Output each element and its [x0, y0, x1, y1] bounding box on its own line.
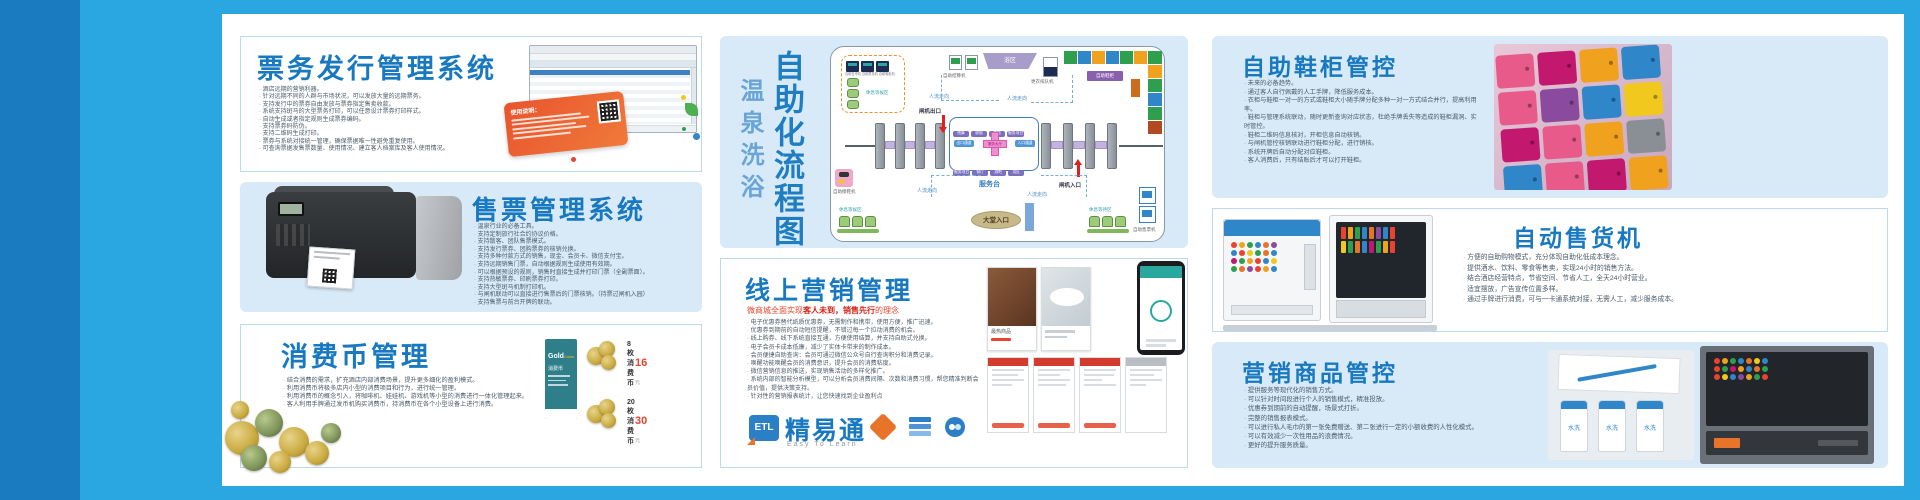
tile — [1540, 87, 1580, 123]
tile — [1341, 241, 1346, 253]
bullet-item: 可以针对时间段进行个人的销售模式，精准投放。 — [1244, 395, 1534, 404]
locker-strip-horizontal — [1064, 51, 1147, 64]
brochure: 票务发行管理系统 酒店远期的营销利器。针对远期不同的人群与市场状况，可以发放大量… — [0, 0, 1920, 500]
machines-area: 自助售币机 自助票务机 自助鞋柜机 休息等候区 — [841, 55, 905, 113]
tile — [1148, 65, 1162, 78]
brand-tagline: Easy To Learn — [787, 441, 858, 448]
price-amount: 30 — [635, 415, 647, 427]
tile — [1722, 366, 1728, 372]
panel-online-marketing: 线上营销管理 微商城全面实现客人未到，销售先行的理念 电子优惠券替代纸质优惠券，… — [720, 258, 1188, 468]
gate-rail — [845, 145, 875, 147]
tile — [1579, 47, 1619, 83]
card-footer — [545, 409, 577, 419]
panel-ticket-issuing: 票务发行管理系统 酒店远期的营销利器。针对远期不同的人群与市场状况，可以发放大量… — [240, 36, 702, 172]
card-text-line — [548, 384, 568, 386]
tile — [1239, 250, 1245, 256]
flow-direction-label: 人流走向 — [1007, 95, 1027, 102]
tile — [1754, 358, 1760, 364]
exit-arrow-shaft — [942, 115, 945, 127]
tile — [1247, 266, 1253, 272]
product-grid — [1231, 242, 1277, 272]
tile — [1355, 227, 1360, 239]
gate-exit-label: 闸机出口 — [919, 107, 941, 115]
printer-side-panel — [416, 196, 462, 280]
tile — [1626, 118, 1666, 154]
orange-locker-block — [1131, 79, 1140, 97]
gate-pillar — [1063, 123, 1073, 169]
bullet-item: 支持热敏票券、印刷票券打印。 — [474, 277, 696, 285]
tile — [1537, 50, 1577, 86]
vending-machine — [1223, 219, 1321, 321]
price-label: 20枚消费币 — [627, 399, 635, 446]
gate-bar — [1073, 141, 1085, 149]
tile — [1247, 258, 1253, 264]
tile — [1148, 93, 1162, 106]
qr-code — [597, 99, 621, 123]
bottles-row: 水洗 水洗 水洗 — [1560, 400, 1664, 452]
feature-icon-layers — [909, 417, 931, 437]
gate-bar — [1051, 141, 1063, 149]
machine-label: 自助票务机 — [862, 71, 878, 76]
bullet-item: 客人消费后，只有结账后才可以打开鞋柜。 — [1244, 157, 1482, 166]
panel-coin-management: 消费币管理 结合消费的需求，扩充酒店内部消费场景，提升更多细化的盈利模式。利用消… — [240, 324, 702, 468]
machine-label: 自助鞋柜机 — [879, 71, 895, 76]
tile — [1355, 241, 1360, 253]
tile — [1064, 51, 1077, 64]
bullet-item: 完整的销售报表模式。 — [1244, 414, 1534, 423]
gate-pillar — [1107, 123, 1117, 169]
bullet-item: 结合酒店经营特点，节省空间、节省人工，全天24小时营业。 — [1463, 274, 1863, 285]
entry-channel-chip: 入口通道 — [1015, 140, 1035, 147]
panel-title: 票务发行管理系统 — [257, 47, 497, 86]
app-screen — [1079, 357, 1121, 433]
tile — [1148, 51, 1162, 64]
bullet-item: 适宜摆放，广告宣传位置多样。 — [1463, 285, 1863, 296]
bullet-item: 自动生成或者指定规则生成票券编码。 — [259, 117, 519, 124]
bench-vertical — [847, 78, 859, 109]
bath-zone: 浴区 — [983, 53, 1037, 69]
bullet-item: 系统内部的智能分析模型，可以分析会员消费间隔、次数和消费习惯，帮您精准判断会员价… — [747, 376, 981, 392]
tile — [1120, 51, 1133, 64]
tile — [1722, 374, 1728, 380]
left-blue-stripe — [0, 0, 80, 500]
window-toolbar — [530, 54, 696, 61]
locker-strip-vertical — [1148, 51, 1162, 134]
queue-machine — [1043, 57, 1058, 77]
tile — [1762, 366, 1768, 372]
tile — [1376, 227, 1381, 239]
tile — [1730, 366, 1736, 372]
bullet-item: 更好的提升服务质量。 — [1244, 441, 1534, 450]
flow-subtitle-vertical: 温泉洗浴 — [732, 78, 767, 206]
tile — [1271, 242, 1277, 248]
flow-path — [1031, 75, 1073, 103]
tile — [1362, 241, 1367, 253]
coin — [305, 441, 329, 465]
app-screen — [1125, 357, 1167, 433]
tvm-label: 自助售票机 — [1133, 227, 1156, 233]
bullet-item: 温泉行业的必备工具。 — [474, 224, 696, 232]
app-screen — [987, 357, 1029, 433]
coin — [321, 423, 341, 443]
bullet-item: 方便的自助购物模式，充分体现自助化低成本理念。 — [1463, 253, 1863, 264]
subtitle-prefix: 微商城全面实现 — [747, 306, 803, 315]
bench-base — [837, 229, 879, 233]
flow-title-vertical: 自助化流程图 — [764, 50, 809, 248]
panel-title: 线上营销管理 — [745, 271, 913, 307]
amenities-photo: 水洗 水洗 水洗 — [1548, 350, 1694, 460]
tile — [1231, 258, 1237, 264]
exit-arrow-head — [939, 127, 947, 133]
tile — [1714, 358, 1720, 364]
app-screen — [1033, 357, 1075, 433]
tile — [1255, 266, 1261, 272]
bullet-item: 与闸机联动可以直接进行售票后的门票核销。（持票过闸机入园） — [474, 292, 696, 300]
tile — [1714, 374, 1720, 380]
confetti-dot — [571, 157, 576, 162]
service-desk-label: 服务台 — [979, 179, 1000, 189]
bullet-item: 电子会员卡成本低廉，减少了实体卡带来的制作成本。 — [747, 344, 981, 352]
coins-photo — [221, 361, 381, 469]
rest-area-label: 休息等候区 — [866, 90, 889, 96]
bullet-item: 支持散客、团队售票模式。 — [474, 239, 696, 247]
bullet-item: 唤醒功能唤醒会员的消费意识，提升会员的消费粘度。 — [747, 360, 981, 368]
tile — [1263, 250, 1269, 256]
tile — [1584, 121, 1624, 157]
tile — [1500, 127, 1540, 163]
tile — [1714, 366, 1720, 372]
rest-area-label: 休息等候区 — [839, 207, 862, 213]
bullet-list: 未来的必备趋势。通过客人自行佩戴的人工手牌，降低服务成本。衣柜与鞋柜一对一的方式… — [1244, 80, 1482, 166]
flow-diagram: 自助售币机 自助票务机 自助鞋柜机 休息等候区 自助结算机 浴区 — [830, 46, 1165, 242]
app-photo-card — [1041, 267, 1091, 351]
vending-front-photo — [1700, 346, 1874, 464]
bottle-grid — [1341, 227, 1395, 253]
card-brand-sub: Coins — [564, 354, 574, 359]
leaf-decoration — [685, 103, 698, 116]
chip-item: 酒吧 — [990, 170, 1006, 177]
bullet-item: 衣柜与鞋柜一对一的方式或鞋柜大小随手牌分配多种一对一方式结合并行，提高利用率。 — [1244, 97, 1482, 114]
bullet-item: 通过手牌进行消费，可与一卡通系统对接，无需人工，减少服务成本。 — [1463, 295, 1863, 306]
coin — [255, 409, 283, 437]
machine-labels: 自助售币机 自助票务机 自助鞋柜机 — [845, 71, 895, 76]
tile — [1629, 155, 1669, 190]
card-brand: Gold — [548, 353, 564, 360]
price-amount: 16 — [635, 357, 647, 369]
tile — [1255, 250, 1261, 256]
app-card-caption: 最热商品 — [988, 326, 1036, 337]
gate-pillar — [895, 123, 905, 169]
card-text-line — [548, 380, 566, 382]
tile — [1390, 227, 1395, 239]
panel-ticket-sales: 售票管理系统 温泉行业的必备工具。支持定制旅行社合约协议价格。支持散客、团队售票… — [240, 182, 702, 312]
label-qr — [322, 268, 337, 283]
bullet-item: 优惠券到期前的自动短信提醒，不错过每一个拉动消费的机会。 — [747, 327, 981, 335]
bottle-label: 水洗 — [1637, 423, 1663, 432]
settle-machines — [949, 55, 978, 70]
locker-tag: 自助鞋柜 — [1087, 71, 1123, 81]
tvm-machines — [1139, 187, 1156, 223]
gold-coins-card: GoldCoins 消费币 — [545, 339, 577, 419]
tile — [1738, 366, 1744, 372]
coin — [601, 355, 616, 370]
tile — [1239, 242, 1245, 248]
gate-bar — [1095, 141, 1107, 149]
tile — [1495, 53, 1535, 89]
tile — [1148, 121, 1162, 134]
tile — [1255, 258, 1261, 264]
window-titlebar — [530, 46, 696, 54]
tile — [1746, 374, 1752, 380]
bullet-item: 线上购券、线下系统直接互通，方便使用结算，并支持自助式兑换。 — [747, 335, 981, 343]
gate-pillar — [875, 123, 885, 169]
bullet-list: 温泉行业的必备工具。支持定制旅行社合约协议价格。支持散客、团队售票模式。支持发行… — [474, 224, 696, 308]
price-unit: 元 — [635, 380, 640, 386]
tile — [1263, 258, 1269, 264]
phone-screen — [1140, 266, 1182, 350]
wait-area-label: 休息等待区 — [1089, 207, 1112, 213]
tile — [1255, 242, 1261, 248]
tile — [1239, 258, 1245, 264]
tile — [1738, 358, 1744, 364]
machine-label: 自助售币机 — [845, 71, 861, 76]
bullet-item: 支持售票与前台开牌的联动。 — [474, 300, 696, 308]
flow-path — [941, 75, 999, 101]
chip-item: 结算 — [953, 131, 969, 138]
panel-title: 售票管理系统 — [472, 190, 646, 227]
tile — [1247, 242, 1253, 248]
printer-lcd — [278, 202, 304, 216]
printed-label — [307, 246, 356, 289]
app-photo-card: 最热商品 — [987, 267, 1037, 351]
tile — [1369, 241, 1374, 253]
tile — [1623, 81, 1663, 117]
service-hall-box: 结算收银商超服务项目 出口通道 入口通道 服务大厅 服务项目餐厅酒吧浴区 — [949, 117, 1039, 171]
coin — [269, 451, 291, 473]
feature-icon-handshake — [945, 417, 965, 437]
exit-channel-chip: 出口通道 — [954, 140, 974, 147]
status-dot — [682, 127, 686, 131]
panel-title: 自动售货机 — [1513, 219, 1643, 253]
hall-center-label: 服务大厅 — [986, 140, 1004, 148]
tile — [1722, 358, 1728, 364]
vending-machine — [1329, 215, 1433, 323]
tile — [1271, 250, 1277, 256]
label-printer-photo — [248, 186, 462, 308]
panel-title: 自助鞋柜管控 — [1242, 48, 1398, 82]
bottle-label: 水洗 — [1599, 423, 1625, 432]
bench — [839, 216, 876, 227]
gate-bar — [925, 141, 935, 149]
tile — [1762, 374, 1768, 380]
card-text-line — [548, 375, 570, 377]
tile — [1231, 250, 1237, 256]
panel-subtitle: 微商城全面实现客人未到，销售先行的理念 — [747, 305, 899, 316]
chip-item: 服务项目 — [1007, 131, 1024, 138]
tile — [1754, 366, 1760, 372]
tile — [1545, 161, 1585, 190]
smartphone-mockup — [1137, 261, 1185, 355]
tile — [1390, 241, 1395, 253]
tile — [1231, 266, 1237, 272]
bullet-item: 提供酒水、饮料、零食等售卖，实现24小时的销售方法。 — [1463, 264, 1863, 275]
tile — [1092, 51, 1105, 64]
tile — [1239, 266, 1245, 272]
tile — [1078, 51, 1091, 64]
tile — [1503, 164, 1543, 190]
bullet-item: 电子优惠券替代纸质优惠券，无需制作和携带，使用方便，推广迅速。 — [747, 319, 981, 327]
bullet-item: 支持二维码生成打印。 — [259, 131, 519, 138]
card-name: 消费币 — [548, 365, 574, 372]
bullet-list: 酒店远期的营销利器。针对远期不同的人群与市场状况，可以发放大量的远期票务。支持发… — [259, 87, 519, 154]
panel-goods-control: 营销商品管控 提供服务等现代化的销售方式。可以针对时间段进行个人的销售模式，精准… — [1212, 342, 1888, 468]
bullet-item: 微信营销信息的推送，实现销售活动的多样化推广。 — [747, 368, 981, 376]
table-header-row — [530, 61, 696, 68]
tile — [1542, 124, 1582, 160]
bench-base — [1087, 229, 1129, 233]
vending-machines-photo — [1223, 215, 1437, 327]
coin — [601, 413, 616, 428]
tile — [1348, 241, 1353, 253]
label-text-line — [314, 251, 350, 256]
panel-title: 营销商品管控 — [1242, 354, 1398, 388]
gate-rail — [1119, 145, 1163, 147]
bench — [1089, 216, 1126, 227]
tile — [1498, 90, 1538, 126]
confetti-dot — [681, 95, 686, 100]
flow-path — [931, 175, 981, 197]
tile — [1106, 51, 1119, 64]
tile — [1754, 374, 1760, 380]
price-unit: 元 — [635, 438, 640, 444]
tile — [1148, 79, 1162, 92]
printer-keypad — [276, 224, 310, 246]
tile — [1746, 358, 1752, 364]
tile — [1730, 374, 1736, 380]
bullet-item: 针对性的营销报表统计，让您快速找到企业盈利点 — [747, 393, 981, 401]
tile — [1383, 241, 1388, 253]
bullet-item: 鞋柜与管理系统联动，随时更新查询对应状态，杜绝手牌丢失等造成的鞋柜漏洞、实时管控… — [1244, 114, 1482, 131]
tile — [1148, 107, 1162, 120]
bullet-item: 通过客人自行佩戴的人工手牌，降低服务成本。 — [1244, 89, 1482, 98]
shoe-shine-machine — [835, 169, 853, 187]
gate-pillar — [915, 123, 925, 169]
bullet-item: 支持远期销售门票，自动根据规则生成使用有效期。 — [474, 262, 696, 270]
bottle-label: 水洗 — [1561, 423, 1587, 432]
bullet-list: 提供服务等现代化的销售方式。可以针对时间段进行个人的销售模式，精准投放。优惠券到… — [1244, 386, 1534, 450]
bullet-item: 针对远期不同的人群与市场状况，可以发放大量的远期票务。 — [259, 94, 519, 101]
tile — [1271, 258, 1277, 264]
subtitle-emphasis: 客人未到，销售先行 — [803, 306, 875, 315]
bullet-list: 电子优惠券替代纸质优惠券，无需制作和携带，使用方便，推广迅速。优惠券到期前的自动… — [747, 319, 981, 401]
tile — [1362, 227, 1367, 239]
shoe-shine-label: 自助擦鞋机 — [833, 189, 856, 195]
chip-item: 浴区 — [1008, 170, 1024, 177]
tile — [1231, 242, 1237, 248]
bullet-item: 会员便捷自助查询：会员可通过微信公众号自行查询积分和消费记录。 — [747, 352, 981, 360]
tile — [1271, 266, 1277, 272]
bullet-item: 可以进行私人毛巾的第一张免费赠送、第二张进行一定的小额收费的人性化模式。 — [1244, 423, 1534, 432]
bullet-list: 方便的自助购物模式，充分体现自助化低成本理念。提供酒水、饮料、零食等售卖，实现2… — [1463, 253, 1863, 306]
gate-pillar — [1041, 123, 1051, 169]
tile — [1383, 227, 1388, 239]
bullet-item: 优惠券到期前的自动提醒，场景式打折。 — [1244, 404, 1534, 413]
tile — [1587, 158, 1627, 190]
label-text-line — [314, 256, 340, 260]
locker-tile-grid — [1495, 44, 1669, 190]
coin — [231, 401, 249, 419]
price-label: 8枚消费币 — [627, 341, 634, 388]
bullet-item: 支持多种付款方式的销售，现金、会员卡、微信支付宝。 — [474, 254, 696, 262]
panel-flow-diagram: 温泉洗浴 自助化流程图 自助售币机 自助票务机 自助鞋柜机 休息等候区 — [720, 36, 1188, 248]
tile — [1247, 250, 1253, 256]
tile — [1746, 366, 1752, 372]
selected-row — [530, 70, 690, 75]
tile — [1621, 44, 1661, 80]
tile — [1762, 358, 1768, 364]
tile — [1263, 266, 1269, 272]
logo-orange-accent — [747, 437, 755, 445]
panel-vending: 自动售货机 方便的自助购物模式，充分体现自助化低成本理念。提供酒水、饮料、零食等… — [1212, 208, 1888, 332]
tile — [1341, 227, 1346, 239]
tile — [1730, 358, 1736, 364]
tile — [1369, 227, 1374, 239]
tile — [1738, 374, 1744, 380]
confetti-dot — [693, 133, 700, 140]
tile — [1134, 51, 1147, 64]
subtitle-suffix: 的理念 — [875, 306, 899, 315]
tile — [1582, 84, 1622, 120]
lobby-entrance: 大堂入口 — [971, 211, 1021, 229]
coin — [241, 445, 267, 471]
locker-photo — [1494, 44, 1672, 190]
bullet-item: 系统支持斑马的大型票务打印，可以任意设计票券打印样式。 — [259, 109, 519, 116]
tile — [1376, 241, 1381, 253]
gate-bar — [885, 141, 895, 149]
tile — [1263, 242, 1269, 248]
bullet-item: 可以有效减少一次性用品的浪费情况。 — [1244, 432, 1534, 441]
bullet-item: 提供服务等现代化的销售方式。 — [1244, 386, 1534, 395]
shelf-grid — [1714, 358, 1768, 380]
lobby-pillar — [1025, 203, 1034, 231]
panel-shoe-locker: 自助鞋柜管控 未来的必备趋势。通过客人自行佩戴的人工手牌，降低服务成本。衣柜与鞋… — [1212, 36, 1888, 198]
bullet-item: 未来的必备趋势。 — [1244, 80, 1482, 89]
bullet-item: 可查询票据发售票数量、使用情况、建立客人档案库及客人使用情况。 — [259, 146, 519, 153]
tile — [1348, 227, 1353, 239]
flow-path — [1041, 175, 1087, 197]
gate-bar — [905, 141, 915, 149]
compass: 服务大厅 — [983, 132, 1007, 156]
bullet-item: 鞋柜二维码信息核对，开柜信息自动核销。 — [1244, 132, 1482, 141]
bullet-item: 与闸机管控核销联动进行鞋柜分配，进行销核。 — [1244, 140, 1482, 149]
gate-pillar — [1085, 123, 1095, 169]
feature-icon-orange — [869, 413, 897, 441]
coupon-card: 使用说明： — [504, 91, 629, 157]
